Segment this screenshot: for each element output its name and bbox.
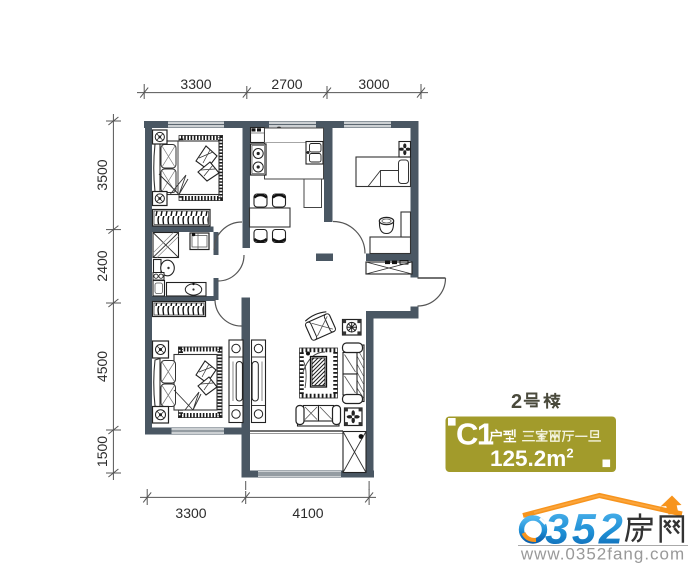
svg-text:125.2m2: 125.2m2	[490, 446, 574, 472]
svg-text:2400: 2400	[94, 250, 110, 281]
svg-text:1500: 1500	[94, 436, 110, 467]
svg-text:2: 2	[511, 391, 522, 413]
svg-text:4500: 4500	[94, 351, 110, 382]
svg-text:3300: 3300	[180, 76, 211, 92]
svg-text:C1: C1	[456, 417, 494, 452]
svg-text:3300: 3300	[175, 505, 206, 521]
svg-text:2700: 2700	[271, 76, 302, 92]
svg-text:3000: 3000	[358, 76, 389, 92]
svg-text:www.0352fang.com: www.0352fang.com	[520, 545, 685, 564]
svg-text:3500: 3500	[94, 159, 110, 190]
svg-text:4100: 4100	[292, 505, 323, 521]
